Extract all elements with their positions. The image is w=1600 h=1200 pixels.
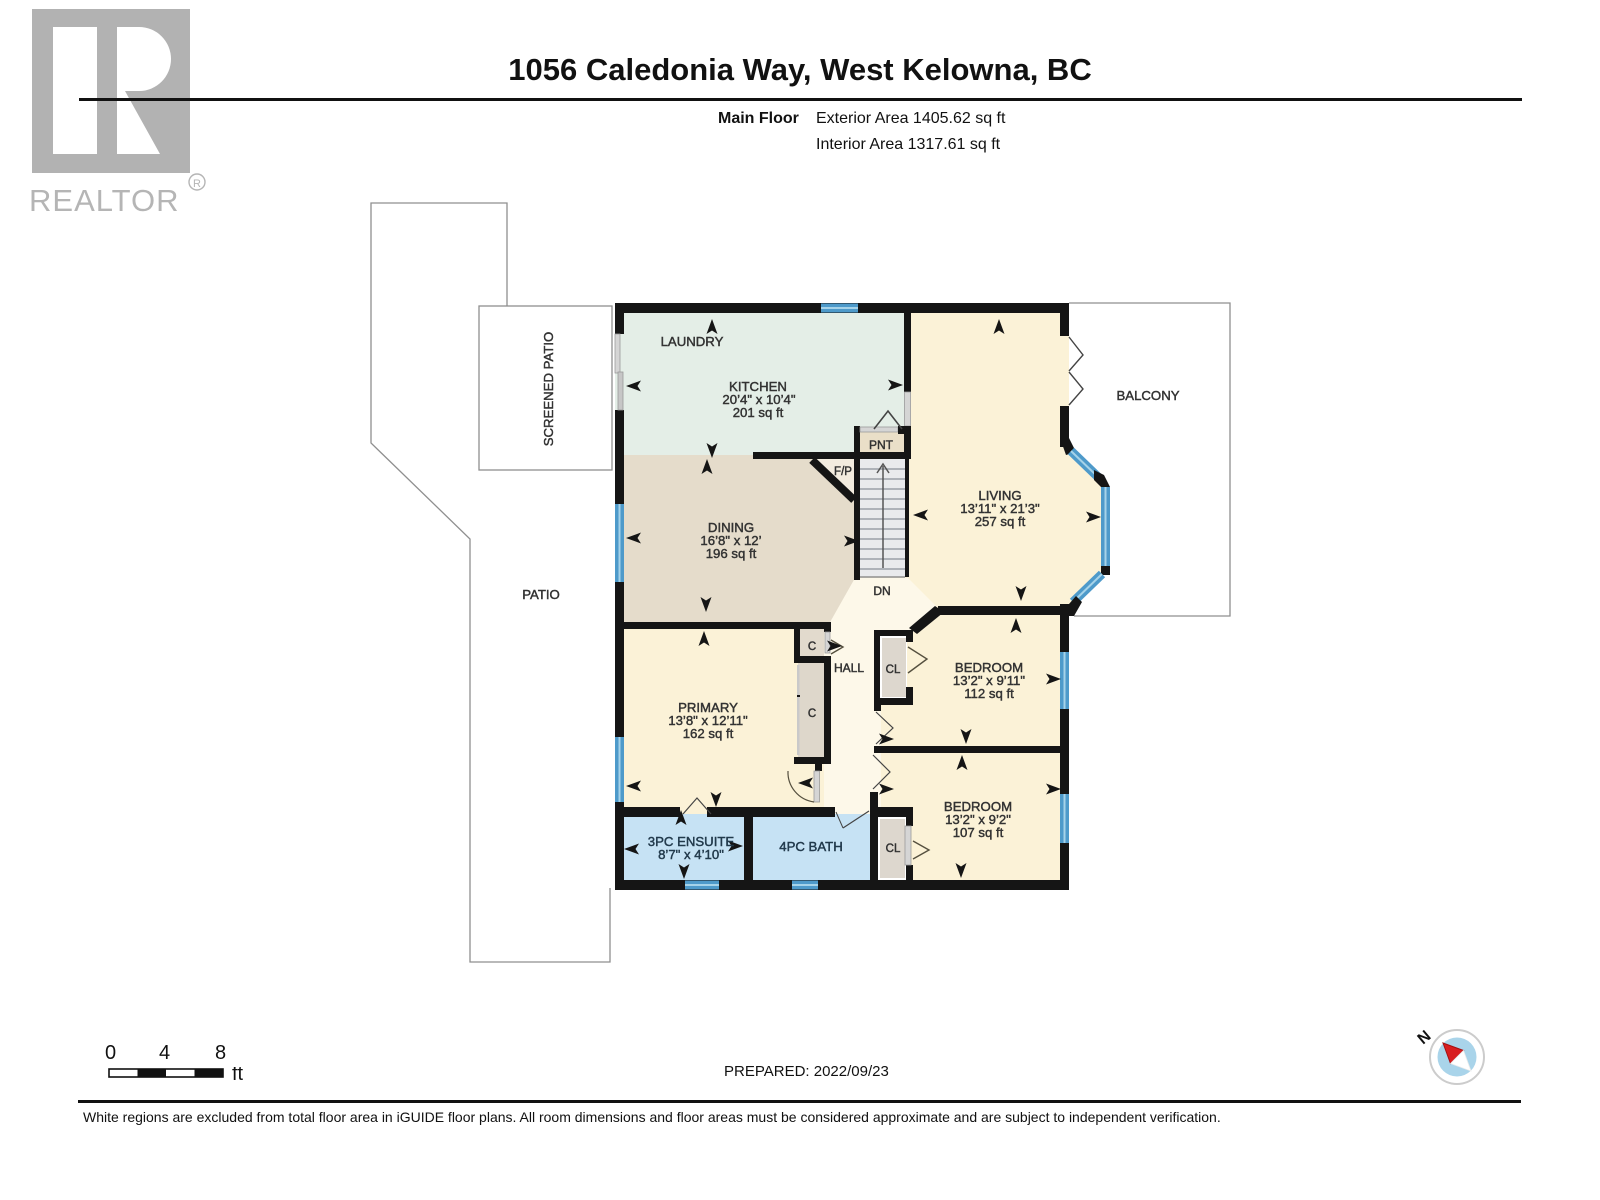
svg-text:196 sq ft: 196 sq ft [706, 546, 757, 561]
svg-text:ft: ft [232, 1067, 244, 1085]
svg-text:4PC BATH: 4PC BATH [779, 839, 843, 854]
svg-text:PNT: PNT [869, 438, 894, 452]
svg-text:SCREENED PATIO: SCREENED PATIO [541, 332, 556, 447]
svg-text:PATIO: PATIO [522, 587, 560, 602]
svg-text:112 sq ft: 112 sq ft [964, 686, 1014, 701]
svg-text:162 sq ft: 162 sq ft [683, 726, 734, 741]
svg-text:107 sq ft: 107 sq ft [953, 825, 1004, 840]
svg-text:CL: CL [886, 664, 901, 676]
svg-text:BALCONY: BALCONY [1116, 388, 1179, 403]
svg-text:257 sq ft: 257 sq ft [975, 514, 1026, 529]
svg-text:DN: DN [873, 584, 890, 598]
svg-text:LAUNDRY: LAUNDRY [661, 334, 724, 349]
svg-text:C: C [808, 641, 816, 653]
svg-text:N: N [1415, 1028, 1435, 1048]
svg-text:HALL: HALL [834, 661, 864, 675]
svg-text:201 sq ft: 201 sq ft [733, 405, 784, 420]
svg-text:8’7" x 4’10": 8’7" x 4’10" [658, 847, 724, 862]
svg-text:CL: CL [886, 843, 901, 855]
svg-text:C: C [808, 708, 816, 720]
svg-text:F/P: F/P [834, 466, 852, 478]
